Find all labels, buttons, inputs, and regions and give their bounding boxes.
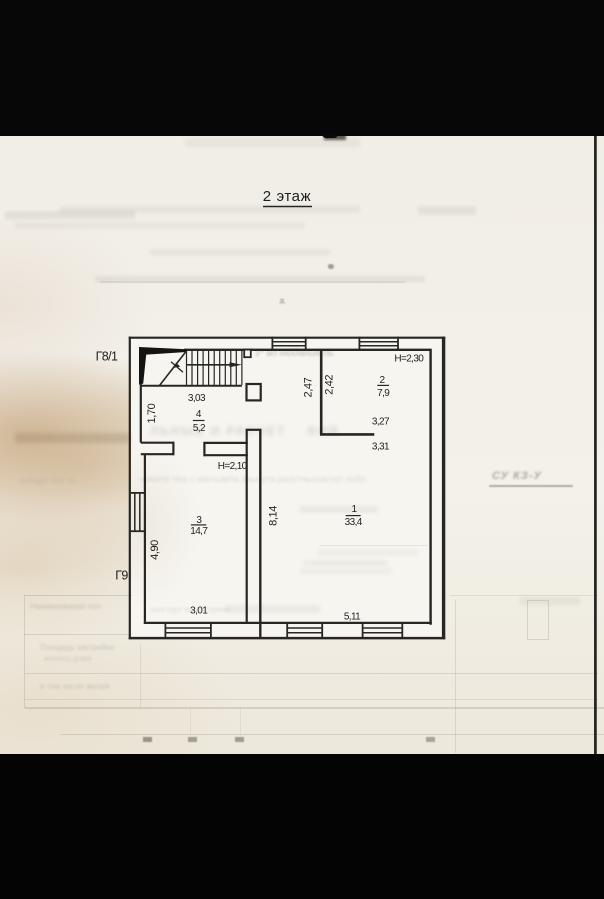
svg-text:14,7: 14,7 (190, 526, 208, 537)
svg-text:3,27: 3,27 (372, 417, 390, 428)
svg-text:Г9: Г9 (115, 569, 128, 583)
svg-text:2 этаж: 2 этаж (263, 188, 312, 205)
svg-text:3,31: 3,31 (372, 442, 390, 453)
svg-text:2: 2 (380, 375, 386, 386)
svg-text:Г8/1: Г8/1 (96, 350, 118, 364)
svg-text:8,14: 8,14 (267, 506, 279, 526)
svg-text:2,47: 2,47 (302, 377, 314, 397)
svg-text:H=2,10: H=2,10 (218, 461, 248, 472)
svg-text:3,01: 3,01 (190, 606, 208, 617)
svg-text:1: 1 (352, 504, 358, 515)
svg-text:7,9: 7,9 (377, 388, 390, 399)
svg-text:5,11: 5,11 (344, 612, 361, 623)
svg-text:5,2: 5,2 (193, 423, 206, 434)
svg-text:1,70: 1,70 (146, 403, 158, 423)
svg-text:3,03: 3,03 (188, 393, 206, 404)
svg-text:4,90: 4,90 (149, 540, 161, 560)
svg-text:4: 4 (196, 409, 202, 420)
svg-text:H=2,30: H=2,30 (394, 354, 424, 365)
svg-text:33,4: 33,4 (345, 517, 363, 528)
svg-text:2,42: 2,42 (323, 375, 335, 395)
